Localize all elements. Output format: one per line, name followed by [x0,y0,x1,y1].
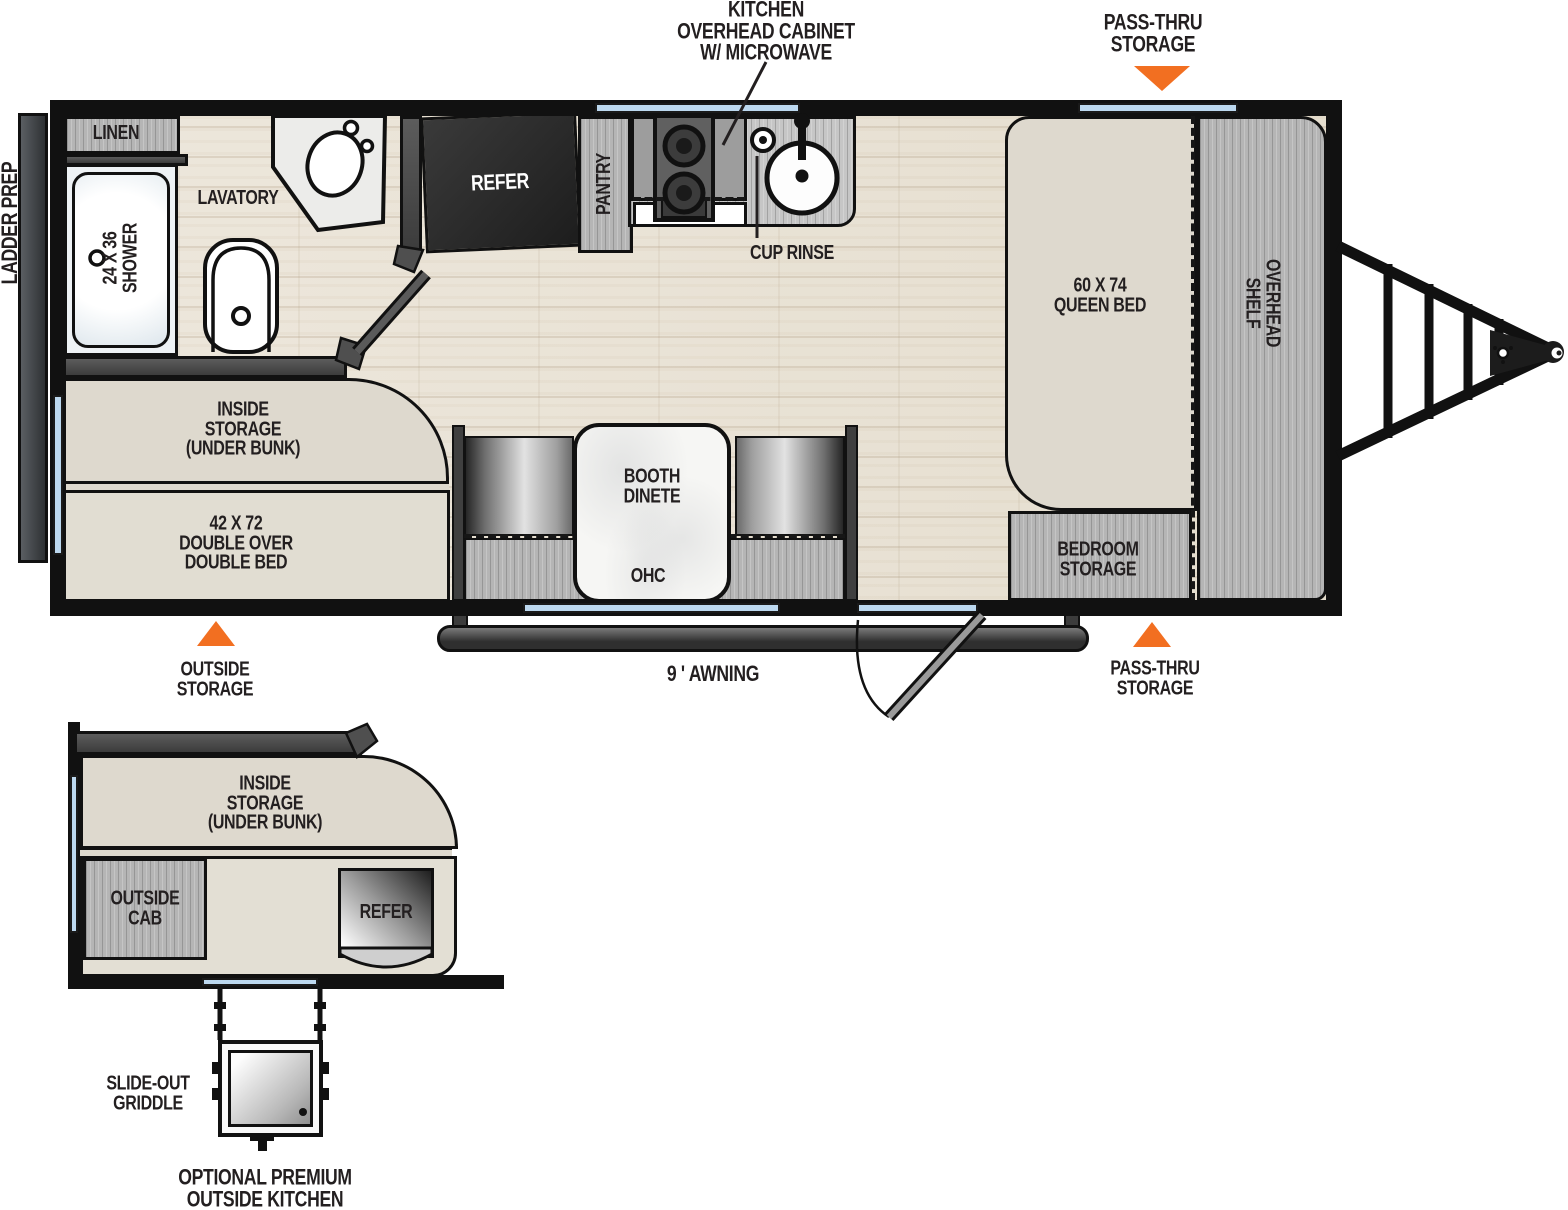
awning-bar [437,625,1089,652]
ladder-prep-bar [18,113,48,563]
lavatory-label: LAVATORY [198,189,279,209]
window-bedroom [1078,103,1238,113]
passthru-bottom-marker [1133,622,1171,647]
cup-rinse-label: CUP RINSE [750,244,834,264]
shower-label: 24 X 36 SHOWER [101,223,140,293]
refer-label: REFER [471,170,530,194]
entry-door-sill [857,603,978,613]
ohc-label: OHC [631,567,666,587]
outside-storage-label: OUTSIDE STORAGE [177,660,254,699]
window-kitchen [595,103,800,113]
outside-kitchen-caption: OPTIONAL PREMIUM OUTSIDE KITCHEN [178,1166,352,1209]
booth-dinette-label: BOOTH DINETE [624,467,681,506]
passthru-top-marker [1134,66,1190,91]
trailer-hitch [1338,246,1564,456]
queen-bed-label: 60 X 74 QUEEN BED [1054,276,1146,315]
overhead-shelf-label: OVERHEAD SHELF [1242,259,1281,347]
floorplan-canvas: KITCHEN OVERHEAD CABINET W/ MICROWAVE PA… [0,0,1568,1210]
ok-griddle-opening [202,978,318,986]
outside-storage-marker [197,621,235,646]
awning-label: 9 ' AWNING [667,663,759,685]
double-bed-label: 42 X 72 DOUBLE OVER DOUBLE BED [179,515,293,574]
window-left [53,395,63,555]
ok-bunk-front-wall [74,731,362,755]
passthru-top-label: PASS-THRU STORAGE [1104,11,1202,54]
passthru-bottom-label: PASS-THRU STORAGE [1110,659,1199,698]
ladder-prep-label: LADDER PREP [0,162,21,285]
ok-refer-label: REFER [360,903,413,923]
griddle-surface [228,1050,313,1127]
inside-storage-label: INSIDE STORAGE (UNDER BUNK) [186,401,300,460]
ok-inside-storage-label: INSIDE STORAGE (UNDER BUNK) [208,775,322,834]
bedroom-storage-label: BEDROOM STORAGE [1057,540,1138,579]
linen-label: LINEN [93,124,139,144]
pantry-label: PANTRY [595,153,615,215]
window-booth [523,603,780,613]
slide-out-griddle-label: SLIDE-OUT GRIDDLE [106,1074,189,1113]
ok-window-left [70,775,78,933]
ok-outside-cab-label: OUTSIDE CAB [111,889,180,928]
kitchen-overhead-callout: KITCHEN OVERHEAD CABINET W/ MICROWAVE [677,0,855,63]
